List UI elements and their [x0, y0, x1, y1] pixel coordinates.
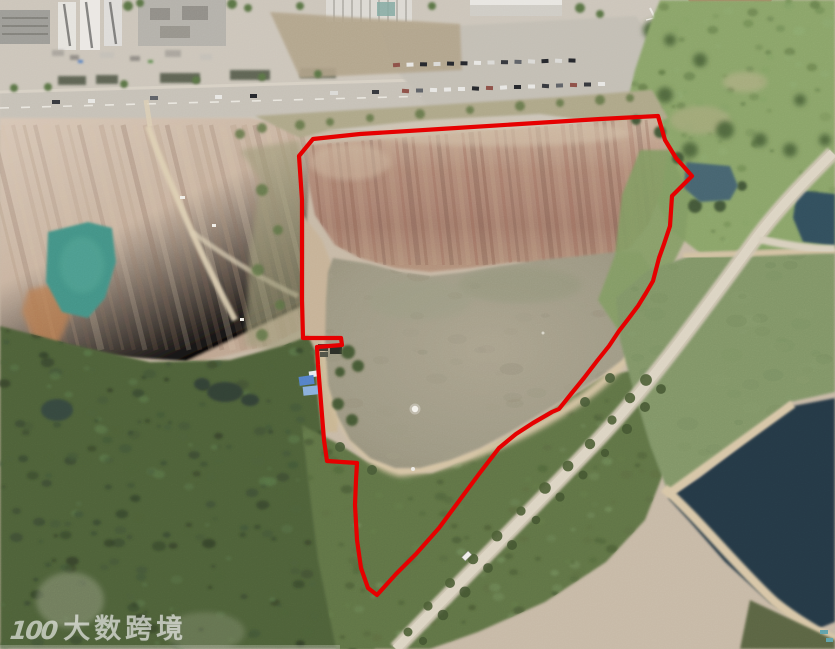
aerial-photo — [0, 0, 835, 649]
screenshot: 100 大数跨境 — [0, 0, 835, 649]
